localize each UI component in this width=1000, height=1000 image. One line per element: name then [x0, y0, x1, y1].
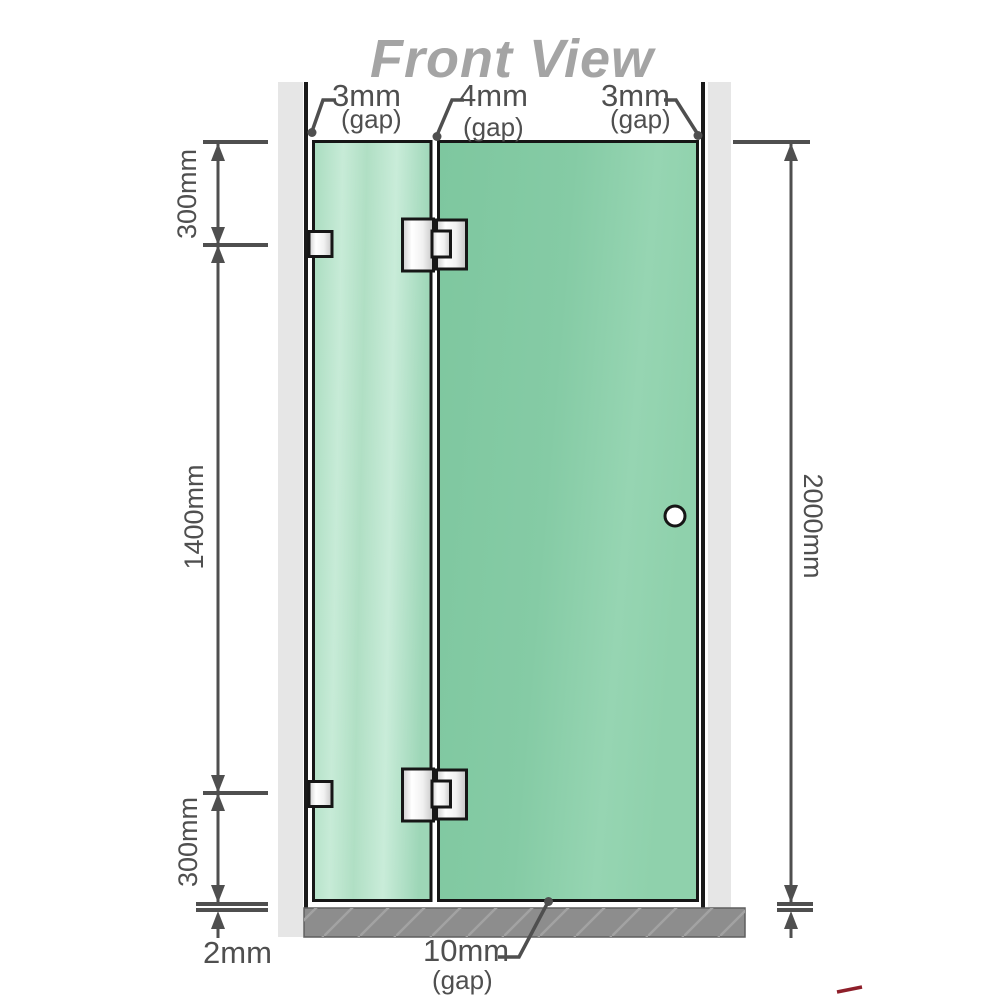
leader-dot-3mm-right — [694, 131, 703, 140]
floor-hatch-texture — [304, 908, 745, 937]
door-handle-knob — [665, 506, 685, 526]
hinge-top-panel-plate — [403, 219, 434, 271]
right-wall-edge-line — [701, 82, 705, 908]
arrow-down-300 — [211, 227, 225, 245]
floor-base — [304, 908, 745, 937]
dim-label-300mm-lower: 300mm — [173, 797, 203, 887]
wall-bracket-top — [309, 232, 332, 257]
dimension-left: 300mm 1400mm 300mm 2mm — [172, 142, 272, 970]
leader-dot-3mm-left — [308, 128, 317, 137]
label-gap-3mm-right-suffix: (gap) — [610, 104, 671, 134]
left-wall-edge-line — [304, 82, 308, 908]
arrow-down-bottom-right — [784, 885, 798, 903]
dim-label-2000mm: 2000mm — [798, 473, 828, 578]
hinge-bottom-knuckle — [432, 781, 451, 807]
front-view-diagram-page: Front View — [0, 0, 1000, 1000]
arrow-up-300b — [211, 793, 225, 811]
dim-label-1400mm: 1400mm — [179, 464, 209, 569]
hinge-top-knuckle — [432, 231, 451, 257]
dim-label-300mm-upper: 300mm — [172, 149, 202, 239]
red-corner-accent — [837, 987, 862, 992]
dim-label-2mm: 2mm — [203, 935, 272, 970]
wall-bracket-bottom — [309, 782, 332, 807]
label-gap-4mm-middle: 4mm — [459, 78, 528, 113]
dimension-right: 2000mm — [733, 142, 828, 938]
front-view-diagram: Front View — [0, 0, 1000, 1000]
hinge-bottom-panel-plate — [403, 769, 434, 821]
arrow-up-top — [211, 143, 225, 161]
label-gap-4mm-middle-suffix: (gap) — [463, 112, 524, 142]
label-gap-3mm-left-suffix: (gap) — [341, 104, 402, 134]
arrow-down-bottom — [211, 885, 225, 903]
arrow-up-top-right — [784, 143, 798, 161]
hinge-bottom — [403, 769, 467, 821]
arrow-down-1400 — [211, 775, 225, 793]
door-glass-panel — [439, 142, 698, 901]
leader-dot-4mm-middle — [433, 132, 442, 141]
left-wall-channel — [278, 82, 303, 937]
label-gap-10mm-bottom-suffix: (gap) — [432, 965, 493, 995]
hinge-top — [403, 219, 467, 271]
label-gap-10mm-bottom: 10mm — [423, 933, 509, 968]
arrow-up-1400 — [211, 245, 225, 263]
right-wall-channel — [708, 82, 731, 908]
leader-dot-10mm-bottom — [544, 897, 553, 906]
